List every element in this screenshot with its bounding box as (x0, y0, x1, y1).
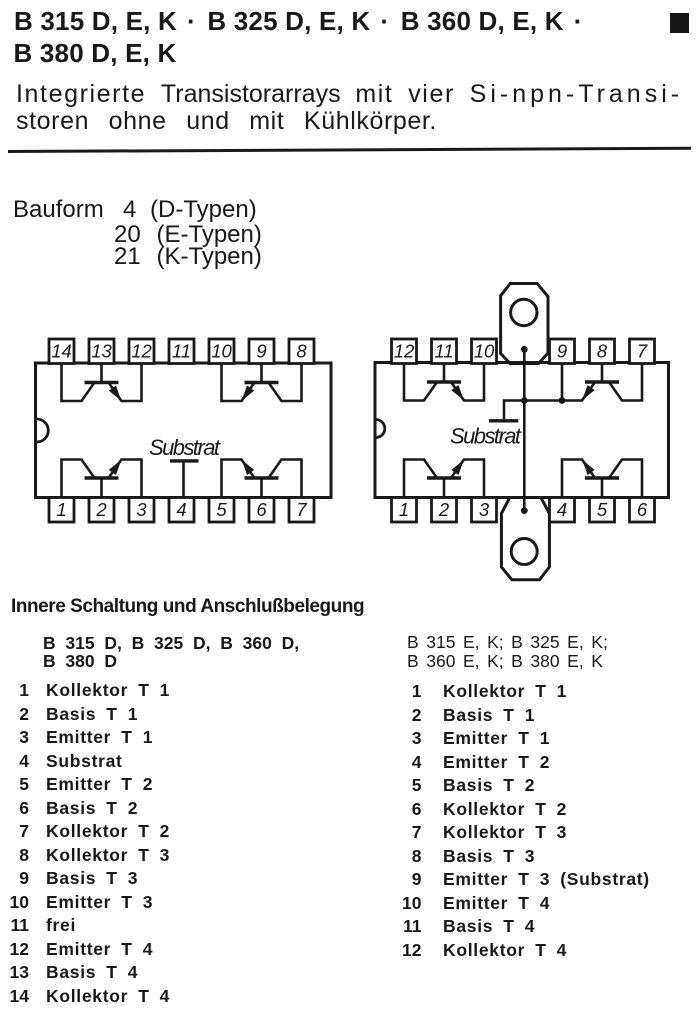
svg-text:9: 9 (256, 341, 266, 362)
svg-text:6: 6 (637, 499, 648, 520)
svg-text:5: 5 (597, 499, 608, 520)
svg-text:12: 12 (394, 341, 415, 362)
svg-text:11: 11 (434, 341, 453, 362)
svg-text:10: 10 (474, 341, 495, 362)
svg-text:5: 5 (216, 499, 227, 520)
svg-text:6: 6 (256, 499, 267, 520)
svg-text:4: 4 (176, 499, 186, 520)
svg-text:11: 11 (172, 341, 191, 362)
svg-text:3: 3 (479, 499, 490, 520)
svg-text:8: 8 (597, 341, 608, 362)
svg-text:Substrat: Substrat (450, 423, 522, 448)
svg-text:2: 2 (438, 499, 450, 520)
svg-text:10: 10 (211, 341, 232, 362)
svg-text:8: 8 (296, 341, 307, 362)
svg-text:1: 1 (399, 499, 409, 520)
svg-text:4: 4 (557, 499, 567, 520)
svg-text:1: 1 (56, 499, 66, 520)
svg-text:3: 3 (136, 499, 147, 520)
svg-text:7: 7 (296, 499, 307, 520)
svg-text:9: 9 (557, 341, 567, 362)
svg-text:14: 14 (51, 341, 72, 362)
svg-text:13: 13 (91, 341, 112, 362)
svg-text:Substrat: Substrat (149, 435, 221, 460)
svg-text:7: 7 (637, 341, 648, 362)
svg-text:12: 12 (131, 341, 152, 362)
svg-text:2: 2 (95, 499, 107, 520)
